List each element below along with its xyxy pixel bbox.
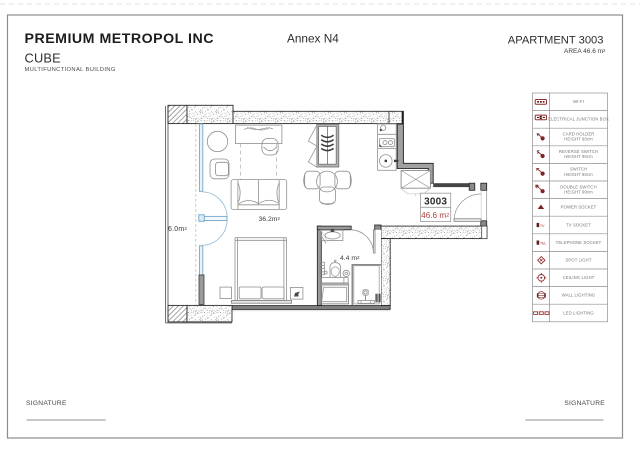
- svg-text:CEILING LIGHT: CEILING LIGHT: [563, 275, 595, 280]
- svg-text:APARTMENT 3003: APARTMENT 3003: [508, 35, 604, 47]
- svg-text:CUBE: CUBE: [25, 51, 61, 66]
- svg-text:HEIGHT 90cm: HEIGHT 90cm: [564, 172, 593, 177]
- svg-text:TEL: TEL: [540, 242, 546, 246]
- svg-text:TV: TV: [540, 224, 545, 228]
- svg-text:3003: 3003: [424, 196, 447, 207]
- svg-text:HEIGHT 90cm: HEIGHT 90cm: [564, 137, 593, 142]
- svg-text:46.6 m2: 46.6 m2: [421, 211, 449, 220]
- svg-text:SPOT LIGHT: SPOT LIGHT: [565, 258, 591, 263]
- svg-text:ELECTRICAL JUNCTION BOX: ELECTRICAL JUNCTION BOX: [548, 117, 609, 122]
- svg-text:TV SOCKET: TV SOCKET: [566, 222, 591, 227]
- svg-text:TELEPHONE SOCKET: TELEPHONE SOCKET: [556, 240, 602, 245]
- svg-text:Annex N4: Annex N4: [287, 32, 339, 46]
- svg-text:HEIGHT 90cm: HEIGHT 90cm: [564, 154, 593, 159]
- svg-text:SIGNATURE: SIGNATURE: [564, 400, 605, 407]
- svg-text:PREMIUM METROPOL INC: PREMIUM METROPOL INC: [25, 31, 214, 47]
- svg-text:AREA 46.6 m2: AREA 46.6 m2: [564, 48, 606, 55]
- svg-text:WALL LIGHTING: WALL LIGHTING: [562, 293, 596, 298]
- svg-text:MULTIFUNCTIONAL BUILDING: MULTIFUNCTIONAL BUILDING: [25, 67, 116, 73]
- svg-text:HEIGHT 90cm: HEIGHT 90cm: [564, 189, 593, 194]
- svg-text:LED LIGHTING: LED LIGHTING: [563, 310, 594, 315]
- svg-text:POWER SOCKET: POWER SOCKET: [561, 205, 597, 210]
- svg-text:SIGNATURE: SIGNATURE: [26, 400, 67, 407]
- svg-text:36.2m2: 36.2m2: [259, 216, 281, 224]
- svg-text:WI-FI: WI-FI: [573, 99, 584, 104]
